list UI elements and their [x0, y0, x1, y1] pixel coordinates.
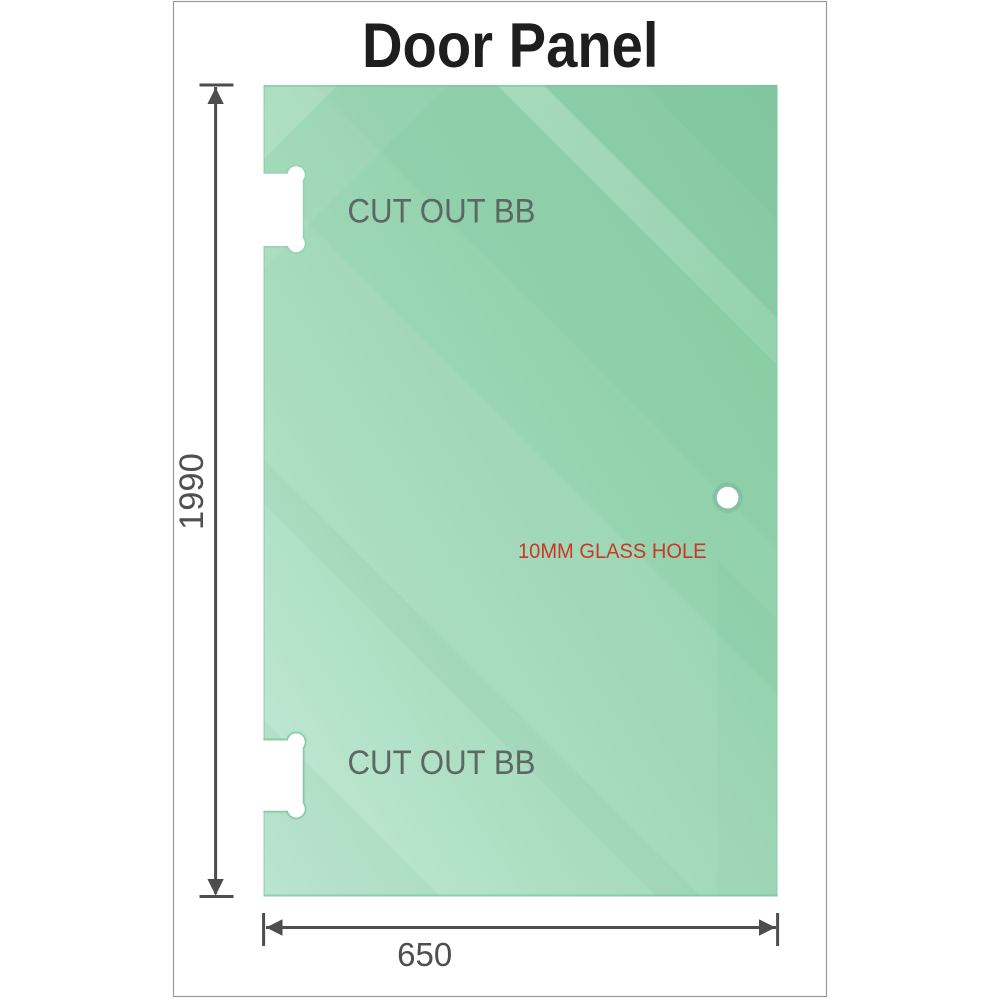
svg-text:CUT OUT BB: CUT OUT BB [348, 744, 536, 782]
svg-text:650: 650 [397, 936, 452, 973]
svg-text:1990: 1990 [173, 453, 211, 530]
svg-text:Door Panel: Door Panel [362, 11, 659, 81]
svg-text:CUT OUT BB: CUT OUT BB [348, 193, 536, 231]
svg-text:10MM GLASS HOLE: 10MM GLASS HOLE [518, 539, 707, 563]
